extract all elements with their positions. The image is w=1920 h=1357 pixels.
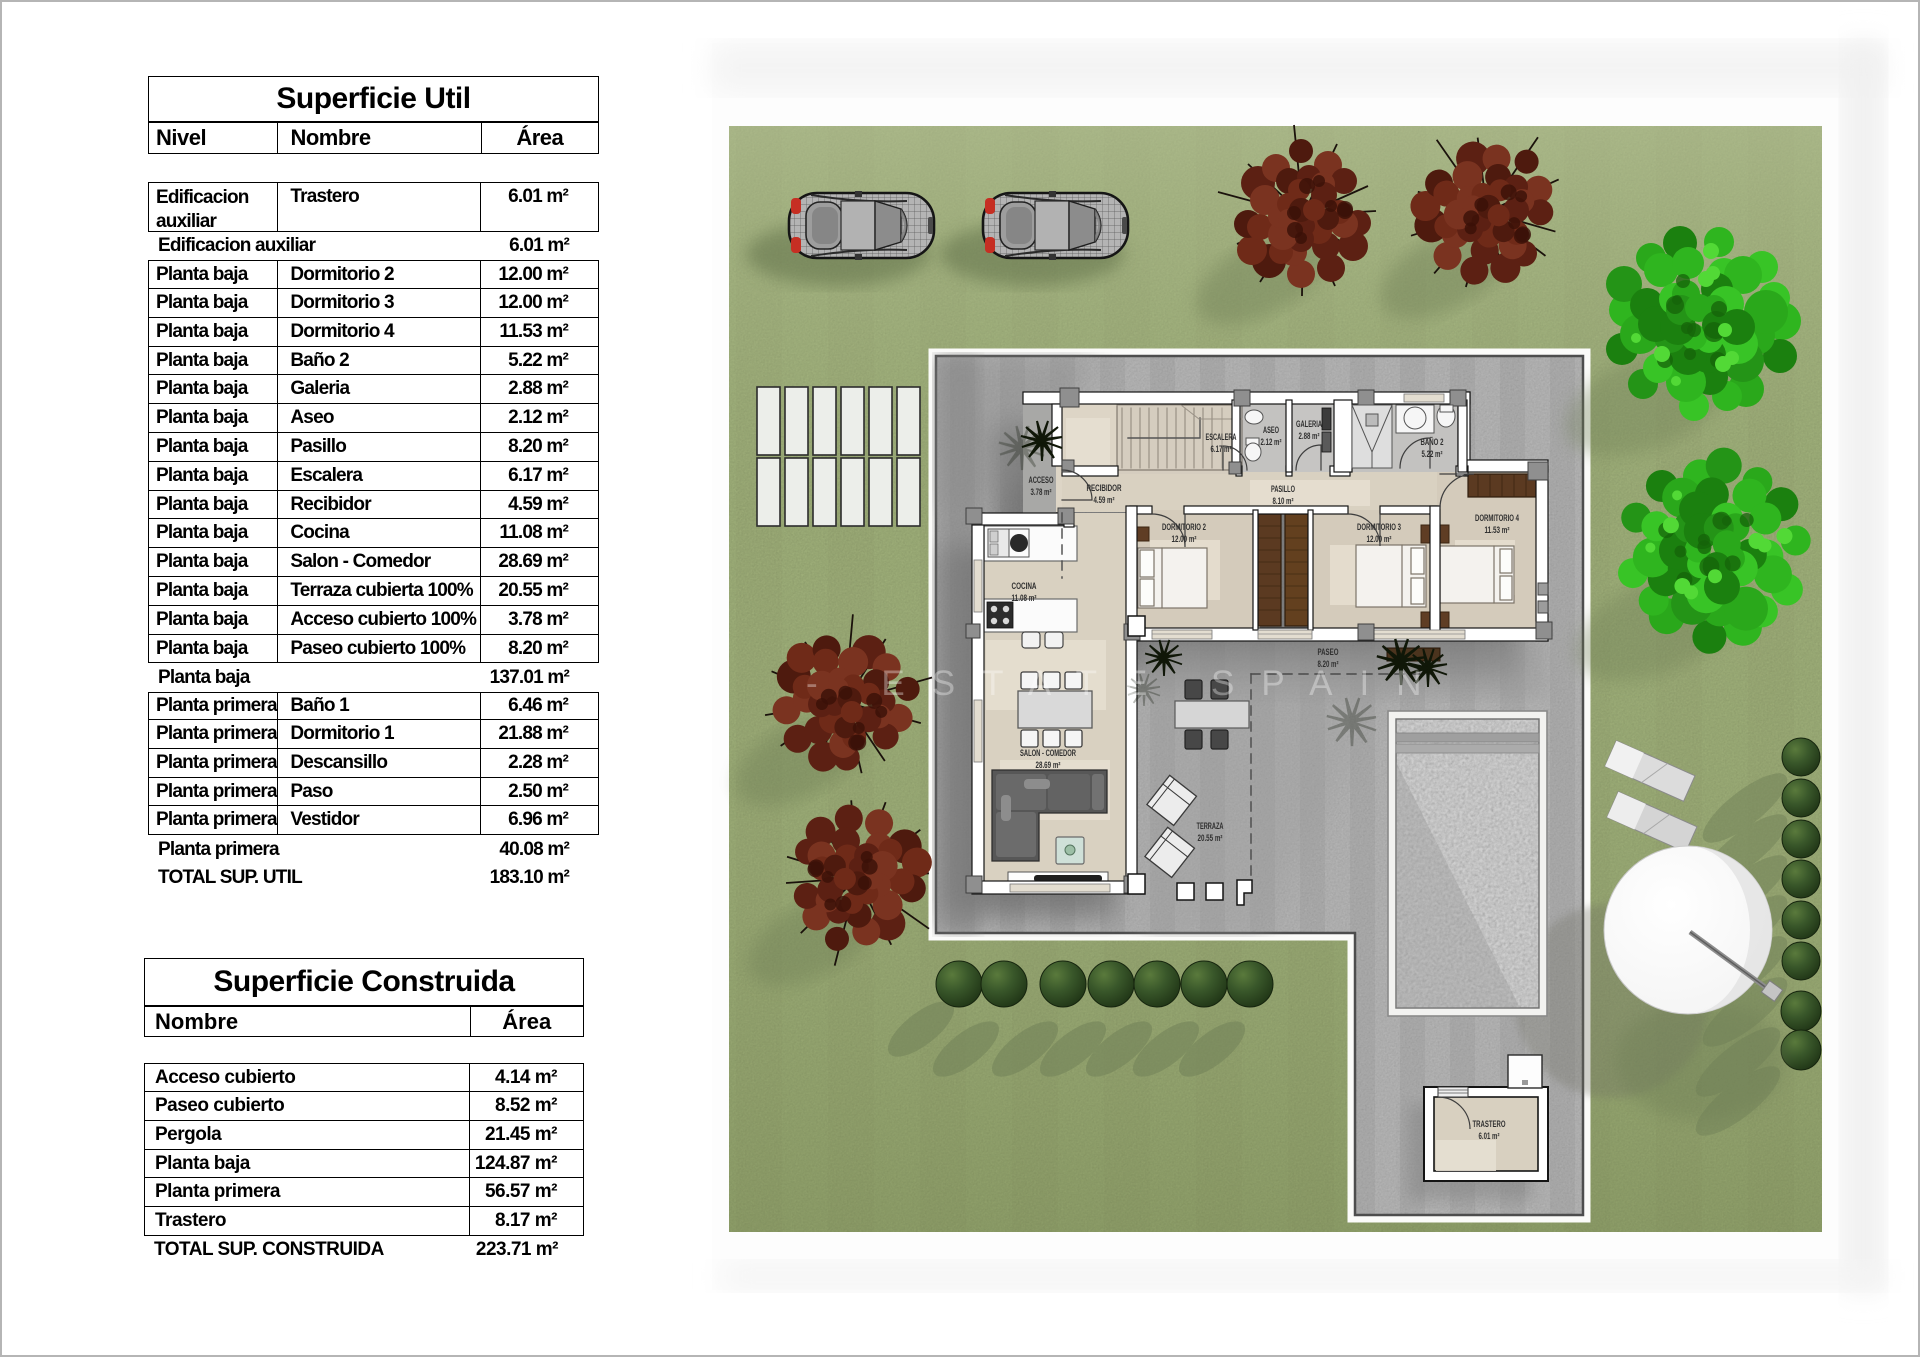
- svg-text:ACCESO: ACCESO: [1029, 475, 1054, 486]
- svg-text:6.17 m²: 6.17 m²: [1211, 444, 1232, 454]
- svg-text:3.78 m²: 3.78 m²: [1031, 487, 1052, 497]
- svg-text:GALERIA: GALERIA: [1296, 419, 1322, 430]
- svg-text:TERRAZA: TERRAZA: [1197, 821, 1224, 832]
- svg-text:11.53 m²: 11.53 m²: [1485, 525, 1510, 535]
- svg-text:12.00 m²: 12.00 m²: [1172, 534, 1197, 544]
- svg-text:2.88 m²: 2.88 m²: [1299, 431, 1320, 441]
- svg-text:COCINA: COCINA: [1012, 581, 1037, 592]
- svg-text:20.55 m²: 20.55 m²: [1198, 833, 1223, 843]
- svg-text:TRASTERO: TRASTERO: [1473, 1119, 1506, 1130]
- svg-text:4.59 m²: 4.59 m²: [1094, 495, 1115, 505]
- svg-text:5.22 m²: 5.22 m²: [1422, 449, 1443, 459]
- svg-text:BAÑO 2: BAÑO 2: [1421, 437, 1444, 448]
- svg-text:2.12 m²: 2.12 m²: [1261, 437, 1282, 447]
- svg-text:ESCALERA: ESCALERA: [1206, 432, 1237, 443]
- svg-text:8.10 m²: 8.10 m²: [1273, 496, 1294, 506]
- svg-text:11.08 m²: 11.08 m²: [1012, 593, 1037, 603]
- svg-text:SALON - COMEDOR: SALON - COMEDOR: [1020, 748, 1076, 759]
- svg-text:28.69 m²: 28.69 m²: [1036, 760, 1061, 770]
- svg-text:PASILLO: PASILLO: [1271, 484, 1295, 495]
- svg-text:12.00 m²: 12.00 m²: [1367, 534, 1392, 544]
- svg-text:- ESTATE SPAIN: - ESTATE SPAIN: [806, 664, 1448, 703]
- svg-text:DORMITORIO 2: DORMITORIO 2: [1162, 522, 1206, 533]
- svg-text:RECIBIDOR: RECIBIDOR: [1087, 483, 1122, 494]
- svg-text:ASEO: ASEO: [1263, 425, 1279, 436]
- svg-text:PASEO: PASEO: [1318, 647, 1339, 658]
- svg-text:6.01 m²: 6.01 m²: [1479, 1131, 1500, 1141]
- svg-text:DORMITORIO 3: DORMITORIO 3: [1357, 522, 1401, 533]
- svg-text:DORMITORIO 4: DORMITORIO 4: [1475, 513, 1519, 524]
